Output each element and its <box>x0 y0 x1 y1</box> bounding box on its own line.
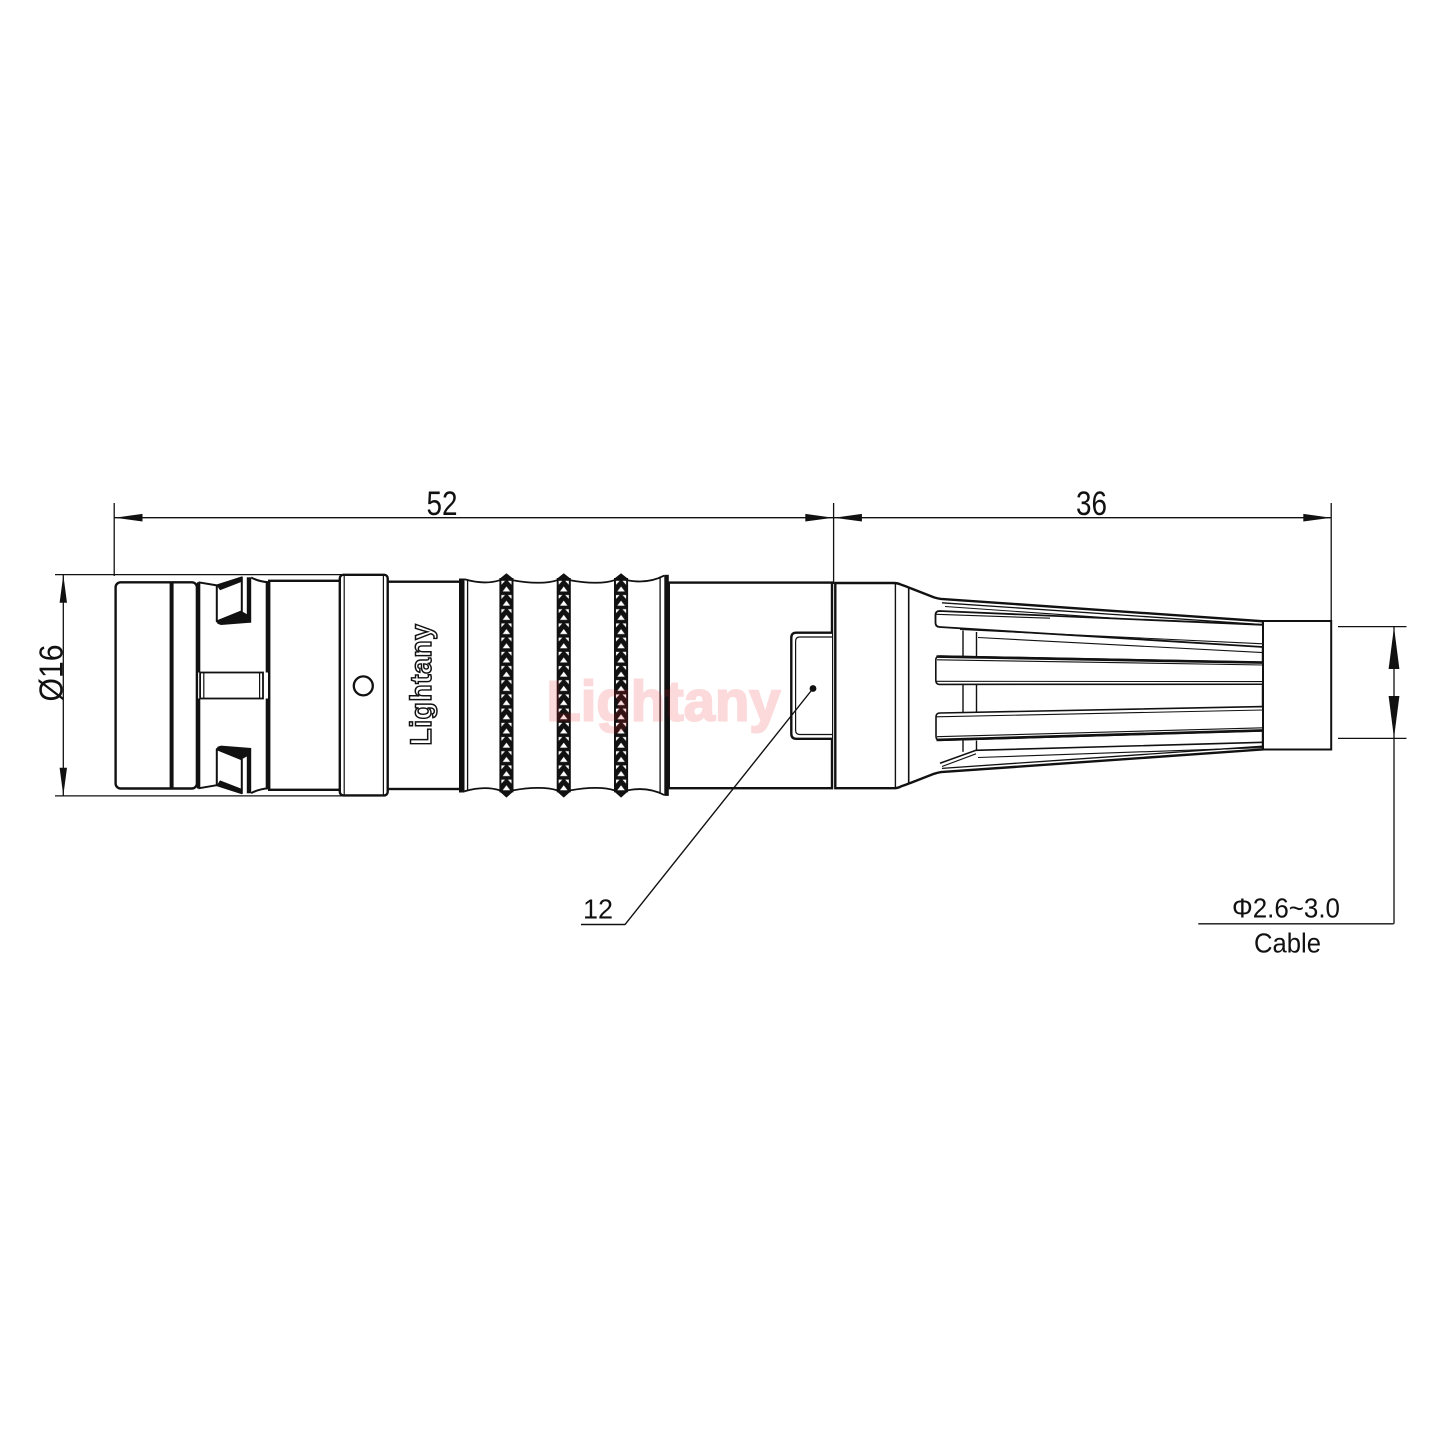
svg-text:12: 12 <box>583 894 613 925</box>
svg-text:Lightany: Lightany <box>547 669 781 733</box>
svg-text:Lightany: Lightany <box>405 624 438 746</box>
svg-text:Cable: Cable <box>1254 928 1321 959</box>
svg-text:52: 52 <box>427 485 458 523</box>
svg-text:36: 36 <box>1076 485 1107 523</box>
svg-text:Ø16: Ø16 <box>33 645 70 702</box>
svg-text:Φ2.6~3.0: Φ2.6~3.0 <box>1232 893 1340 924</box>
